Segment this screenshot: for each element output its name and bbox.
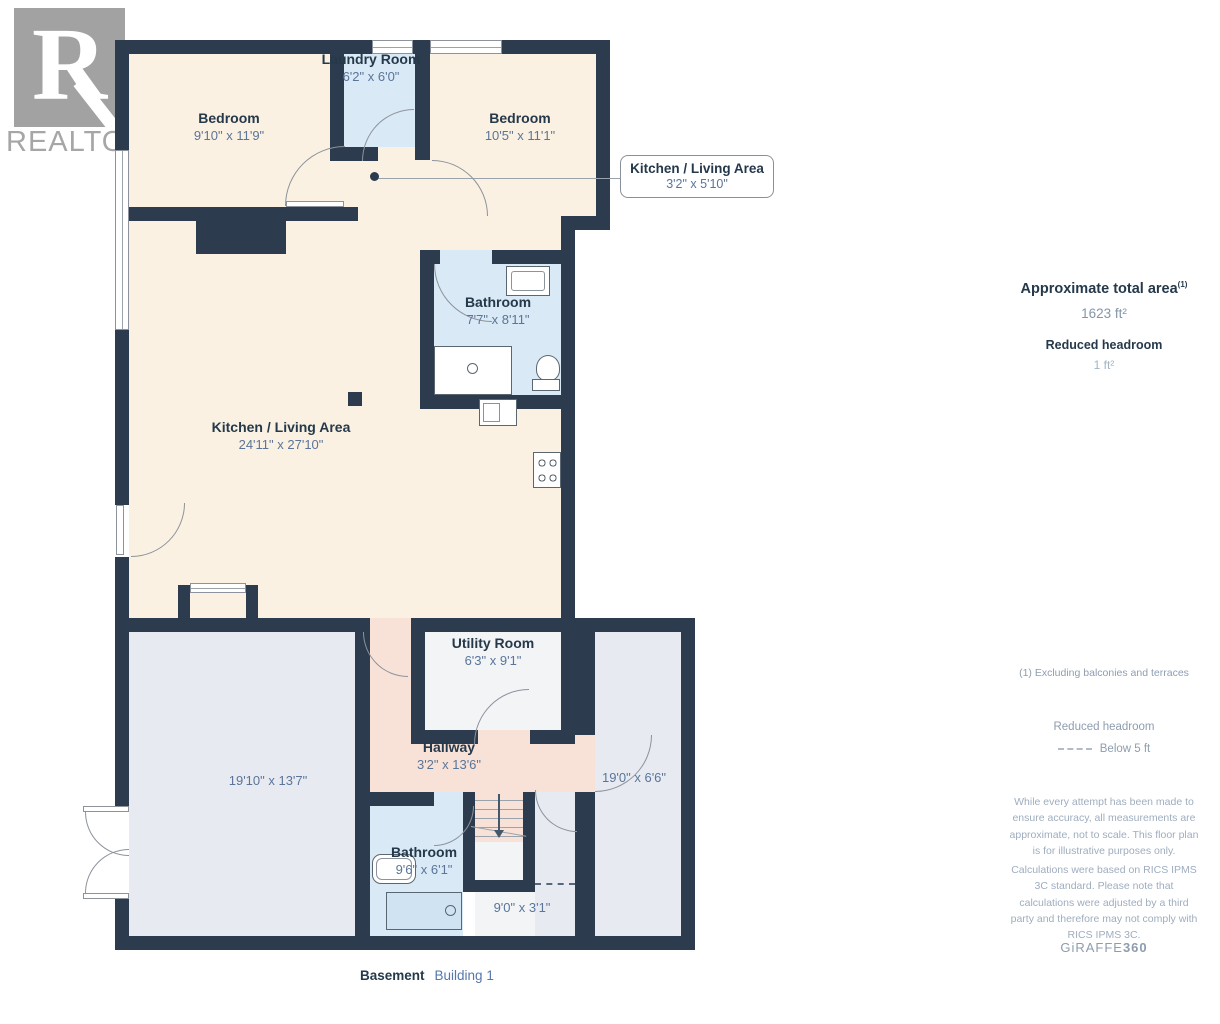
room-name: Kitchen / Living Area	[212, 419, 351, 436]
room-name: Bedroom	[194, 110, 264, 127]
legend-title: Reduced headroom	[1008, 721, 1200, 733]
area-hallway	[370, 744, 595, 792]
room-name: Bathroom	[391, 844, 457, 861]
post	[348, 392, 362, 406]
window	[115, 150, 129, 330]
wall	[246, 585, 258, 618]
bathroom-vanity-icon	[506, 266, 550, 296]
room-dims: 9'6" x 6'1"	[391, 861, 457, 878]
wall	[115, 618, 370, 632]
room-label-side-room: 19'0" x 6'6"	[602, 769, 666, 786]
floor-title: BasementBuilding 1	[360, 968, 494, 983]
disclaimer-accuracy: While every attempt has been made to ens…	[1008, 794, 1200, 859]
room-dims: 6'2" x 6'0"	[322, 68, 421, 85]
room-dims: 6'3" x 9'1"	[452, 652, 534, 669]
disclaimer-rics: Calculations were based on RICS IPMS 3C …	[1008, 862, 1200, 943]
room-dims: 7'7" x 8'11"	[465, 311, 531, 328]
room-name: Bedroom	[485, 110, 555, 127]
wall	[530, 730, 575, 744]
callout-title: Kitchen / Living Area	[625, 160, 769, 177]
stairs-arrow	[498, 794, 500, 832]
stove-icon	[533, 452, 561, 488]
wall	[492, 250, 575, 264]
callout-leader-dot	[370, 172, 379, 181]
total-area-value: 1623 ft²	[1008, 306, 1200, 321]
room-name: Bathroom	[465, 294, 531, 311]
wall	[115, 936, 695, 950]
toilet-tank-icon	[532, 379, 560, 391]
room-label-crawl-space: 9'0" x 3'1"	[494, 899, 551, 916]
reduced-headroom-value: 1 ft²	[1008, 358, 1200, 372]
room-label-utility: Utility Room 6'3" x 9'1"	[452, 635, 534, 669]
reduced-headroom-dashed-line	[535, 883, 575, 885]
room-label-bathroom-upper: Bathroom 7'7" x 8'11"	[465, 294, 531, 328]
page: { "palette": { "wall": "#2c3b4d", "room_…	[0, 0, 1220, 1024]
door-gap	[440, 250, 492, 264]
dashed-line-legend-swatch	[1058, 748, 1092, 750]
room-label-laundry: Laundry Room 6'2" x 6'0"	[322, 51, 421, 85]
room-dims: 19'10" x 13'7"	[229, 772, 308, 789]
room-label-kitchen-living: Kitchen / Living Area 24'11" x 27'10"	[212, 419, 351, 453]
room-label-hallway: Hallway 3'2" x 13'6"	[417, 739, 481, 773]
wall	[561, 216, 575, 744]
room-label-rec-room: 19'10" x 13'7"	[229, 772, 308, 789]
legend-value: Below 5 ft	[1100, 743, 1151, 755]
room-name: Utility Room	[452, 635, 534, 652]
room-label-bathroom-lower: Bathroom 9'6" x 6'1"	[391, 844, 457, 878]
door-arc	[85, 812, 129, 856]
room-label-bedroom-1: Bedroom 9'10" x 11'9"	[194, 110, 264, 144]
stairs-arrow-head	[494, 830, 504, 838]
wall	[523, 792, 535, 888]
room-label-bedroom-2: Bedroom 10'5" x 11'1"	[485, 110, 555, 144]
room-dims: 19'0" x 6'6"	[602, 769, 666, 786]
wall	[411, 632, 425, 730]
room-dims: 24'11" x 27'10"	[212, 436, 351, 453]
giraffe360-logo: GiRAFFE360	[1008, 940, 1200, 955]
wall	[575, 632, 595, 735]
room-dims: 3'2" x 13'6"	[417, 756, 481, 773]
door-leaf	[116, 505, 124, 555]
wall	[596, 40, 610, 230]
wall	[115, 40, 129, 150]
shower-icon	[434, 346, 512, 395]
room-dims: 10'5" x 11'1"	[485, 127, 555, 144]
door-gap	[575, 735, 595, 792]
wall	[575, 792, 595, 936]
wall	[370, 792, 434, 806]
kitchen-living-callout: Kitchen / Living Area 3'2" x 5'10"	[620, 155, 774, 198]
room-name: Laundry Room	[322, 51, 421, 68]
wall	[178, 585, 190, 618]
legend-row: Below 5 ft	[1008, 743, 1200, 755]
callout-dims: 3'2" x 5'10"	[625, 177, 769, 192]
area-understairs	[475, 842, 523, 880]
door-leaf	[83, 893, 129, 899]
reduced-headroom-label: Reduced headroom	[1008, 338, 1200, 352]
door-gap	[434, 792, 463, 806]
bathroom-vanity-icon	[386, 892, 462, 930]
room-name: Hallway	[417, 739, 481, 756]
building-name: Building 1	[435, 968, 494, 983]
window	[190, 583, 246, 593]
floor-name: Basement	[360, 968, 425, 983]
wall	[502, 40, 610, 54]
room-dims: 9'10" x 11'9"	[194, 127, 264, 144]
wall	[355, 632, 370, 936]
total-area-label: Approximate total area(1)	[1008, 280, 1200, 297]
window	[430, 40, 502, 54]
wall	[411, 618, 695, 632]
footnote-marker: (1)	[1178, 280, 1188, 289]
chimney	[196, 210, 286, 254]
wall	[115, 557, 129, 806]
wall	[681, 618, 695, 950]
wall	[115, 330, 129, 505]
wall	[420, 250, 434, 409]
kitchen-sink-icon	[479, 399, 517, 426]
callout-leader-line	[378, 178, 620, 179]
room-dims: 9'0" x 3'1"	[494, 899, 551, 916]
wall	[463, 880, 535, 892]
toilet-icon	[536, 355, 560, 381]
area-footnote: (1) Excluding balconies and terraces	[1008, 667, 1200, 679]
